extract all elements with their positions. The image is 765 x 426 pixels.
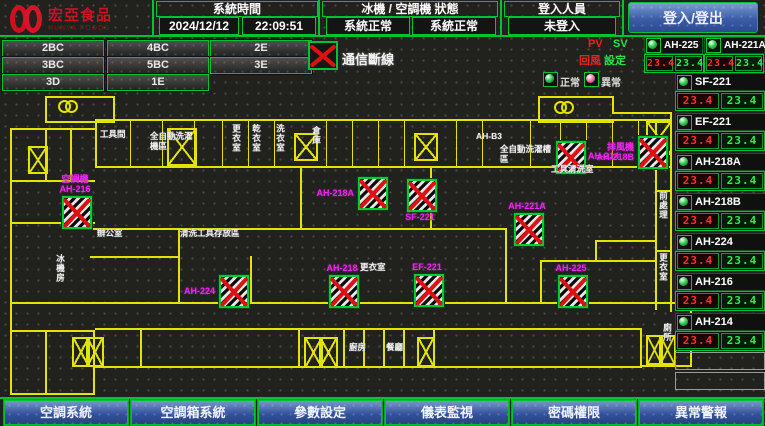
status-lamp-icon [677, 115, 692, 130]
room-label: 全自動洗濯槽區 [500, 145, 552, 164]
ahu-comm-loss-icon-ah-218a[interactable] [358, 177, 388, 210]
plan-wall [45, 330, 47, 393]
sv-value: 23.4 [721, 253, 763, 269]
nav-alarm-button[interactable]: 異常警報 [639, 400, 763, 425]
abnormal-lamp-icon [584, 72, 599, 87]
chiller-status-value: 系統正常 [326, 17, 410, 35]
room-label: 倉庫 [311, 126, 321, 145]
machine-status-label: 冰機 / 空調機 狀態 [322, 1, 498, 17]
plan-wall [612, 112, 672, 114]
unit-row-ef-221[interactable]: EF-221 [675, 113, 765, 131]
equipment-label: 排風機 AH-218B [574, 142, 634, 162]
normal-label: 正常 [560, 74, 580, 89]
ahu-comm-loss-icon-ah-224[interactable] [219, 275, 249, 308]
plan-wall [90, 256, 178, 258]
unit-row-sf-221[interactable]: SF-221 [675, 73, 765, 91]
unit-row-ah-218a[interactable]: AH-218A [675, 153, 765, 171]
top-bar: 宏亞食品 HUNYA FOODS 系統時間 2024/12/12 22:09:5… [0, 0, 765, 36]
unit-name: AH-224 [695, 236, 733, 248]
plan-wall [10, 128, 12, 395]
unit-values-ef-221: 23.423.4 [675, 131, 765, 151]
plan-wall [640, 328, 642, 368]
sv-value: 23.4 [675, 56, 702, 71]
system-time-label: 系統時間 [156, 1, 318, 17]
header-divider [318, 0, 320, 36]
status-lamp-icon [677, 75, 692, 90]
ahu-comm-loss-icon-sf-221[interactable] [407, 179, 437, 212]
sv-value: 23.4 [721, 333, 763, 349]
plan-wall [250, 256, 252, 302]
pv-value: 23.4 [677, 133, 719, 149]
abnormal-label: 異常 [601, 74, 621, 89]
status-lamp-icon [677, 155, 692, 170]
unit-values-ah-216: 23.423.4 [675, 291, 765, 311]
room-label: 工具間 [100, 130, 126, 140]
sv-value: 23.4 [721, 133, 763, 149]
system-date-value: 2024/12/12 [159, 17, 239, 35]
unit-name: AH-218A [695, 156, 741, 168]
header-divider [152, 0, 154, 36]
unit-row-ah-218b[interactable]: AH-218B [675, 193, 765, 211]
unit-row-ah-214[interactable]: AH-214 [675, 313, 765, 331]
pv-value: 23.4 [677, 333, 719, 349]
plan-wall [352, 119, 353, 166]
normal-lamp-icon [543, 72, 558, 87]
header-divider [500, 0, 502, 36]
plan-wall [113, 96, 115, 121]
plan-wall [222, 119, 223, 166]
floor-button-2e[interactable]: 2E [210, 40, 312, 57]
nav-param-settings-button[interactable]: 參數設定 [258, 400, 382, 425]
ahu-comm-loss-icon-ah-225[interactable] [558, 275, 588, 308]
status-lamp-icon [646, 38, 661, 53]
room-label: AH-B3 [476, 132, 502, 142]
floor-button-2bc[interactable]: 2BC [2, 40, 104, 57]
plan-wall [10, 393, 95, 395]
plan-wall [45, 96, 115, 98]
room-label: 更衣室 [658, 253, 668, 282]
plan-wall [595, 240, 597, 262]
plan-wall [45, 96, 47, 121]
room-label: 工具清洗室 [551, 165, 594, 175]
unit-values-ah-221a: 23.423.4 [704, 54, 764, 73]
plan-wall [538, 121, 614, 123]
floor-button-5bc[interactable]: 5BC [107, 57, 209, 74]
ahu-comm-loss-icon-ah-218b[interactable] [638, 136, 668, 169]
room-label: 廚房 [349, 343, 366, 353]
empty-unit-slot [675, 352, 765, 370]
plan-wall [130, 119, 131, 166]
unit-values-ah-218a: 23.423.4 [675, 171, 765, 191]
sv-value: 23.4 [721, 213, 763, 229]
unit-name: AH-221A [724, 40, 765, 51]
ahu-comm-loss-icon-ah-218[interactable] [329, 275, 359, 308]
unit-name: EF-221 [695, 116, 731, 128]
equipment-label: SF-221 [390, 212, 450, 222]
status-lamp-icon [677, 315, 692, 330]
plan-wall [298, 328, 300, 368]
unit-name: AH-225 [664, 40, 698, 51]
comm-loss-icon [308, 41, 338, 70]
plan-wall [538, 96, 540, 121]
plan-wall [10, 330, 95, 332]
plan-wall [540, 260, 655, 262]
plan-wall [612, 96, 614, 114]
pv-value: 23.4 [677, 253, 719, 269]
ac-status-value: 系統正常 [412, 17, 496, 35]
comm-loss-label: 通信斷線 [342, 49, 394, 68]
plan-wall [343, 328, 345, 368]
plan-wall [326, 119, 327, 166]
status-lamp-icon [677, 275, 692, 290]
unit-row-ah-216[interactable]: AH-216 [675, 273, 765, 291]
header-divider [622, 0, 624, 36]
room-label: 餐廳 [386, 343, 403, 353]
nav-password-auth-button[interactable]: 密碼權限 [512, 400, 636, 425]
room-label: 更衣室 [231, 124, 241, 153]
sv-header: SV [613, 38, 628, 50]
unit-name: SF-221 [695, 76, 731, 88]
plan-wall [403, 328, 405, 368]
equipment-label: AH-224 [155, 286, 215, 296]
plan-wall [378, 119, 379, 166]
plan-wall [505, 228, 507, 302]
room-label: 更衣室 [360, 263, 386, 273]
nav-ahu-system-button[interactable]: 空調箱系統 [131, 400, 255, 425]
room-label: 乾衣室 [251, 124, 261, 153]
pv-header: PV [588, 38, 603, 50]
unit-values-sf-221: 23.423.4 [675, 91, 765, 111]
sv-value: 23.4 [721, 173, 763, 189]
floor-button-1e[interactable]: 1E [107, 74, 209, 91]
room-label: 全自動洗濯機區 [150, 132, 196, 151]
plan-wall [10, 128, 95, 130]
unit-values-ah-214: 23.423.4 [675, 331, 765, 351]
logo-company-name: 宏亞食品 [48, 4, 112, 25]
equipment-label: AH-225 [541, 263, 601, 273]
sv-value: 23.4 [721, 93, 763, 109]
room-label: 清洗工具存放區 [180, 229, 240, 239]
plan-wall [456, 119, 457, 166]
plan-wall [482, 119, 483, 166]
hunya-logo-icon [8, 3, 42, 32]
sv-sub-label: 設定 [604, 52, 626, 68]
login-status-value: 未登入 [508, 17, 616, 35]
floor-button-4bc[interactable]: 4BC [107, 40, 209, 57]
sv-value: 23.4 [721, 293, 763, 309]
unit-name: AH-218B [695, 196, 741, 208]
spiral-stair-icon [58, 99, 78, 114]
equipment-label: EF-221 [397, 262, 457, 272]
floor-button-3d[interactable]: 3D [2, 74, 104, 91]
stairwell-icon [28, 146, 48, 174]
unit-row-ah-225[interactable]: AH-225 [644, 37, 703, 54]
stairwell-icon [86, 337, 104, 367]
pv-value: 23.4 [646, 56, 673, 71]
nav-ac-system-button[interactable]: 空調系統 [4, 400, 128, 425]
ahu-comm-loss-icon-ah-216[interactable] [62, 196, 92, 229]
plan-wall [95, 328, 640, 330]
floor-button-3e[interactable]: 3E [210, 57, 312, 74]
plan-wall [383, 328, 385, 368]
pv-value: 23.4 [677, 293, 719, 309]
plan-wall [655, 250, 672, 252]
unit-row-ah-224[interactable]: AH-224 [675, 233, 765, 251]
room-label: 冰機房 [55, 254, 65, 283]
room-label: 廁所 [662, 323, 672, 342]
system-time-value: 22:09:51 [242, 17, 316, 35]
plan-wall [45, 121, 115, 123]
ahu-comm-loss-icon-ef-221[interactable] [414, 274, 444, 307]
stairwell-icon [414, 133, 438, 161]
plan-wall [95, 366, 640, 368]
room-label: 前處理 [658, 191, 668, 220]
separator-line [0, 397, 765, 399]
status-lamp-icon [706, 38, 721, 53]
status-lamp-icon [677, 195, 692, 210]
unit-values-ah-225: 23.423.4 [644, 54, 704, 73]
status-lamp-icon [677, 235, 692, 250]
unit-values-ah-218b: 23.423.4 [675, 211, 765, 231]
pv-sub-label: 回風 [579, 52, 601, 68]
room-label: 辦公室 [97, 229, 123, 239]
room-label: 洗衣室 [275, 124, 285, 153]
unit-row-ah-221a[interactable]: AH-221A [704, 37, 765, 54]
pv-value: 23.4 [677, 93, 719, 109]
unit-name: AH-216 [695, 276, 733, 288]
ahu-comm-loss-icon-ah-221a[interactable] [514, 213, 544, 246]
unit-values-ah-224: 23.423.4 [675, 251, 765, 271]
stairwell-icon [417, 337, 435, 367]
nav-meter-monitor-button[interactable]: 儀表監視 [385, 400, 509, 425]
logo-title: 宏亞食品 HUNYA FOODS [48, 4, 112, 32]
plan-wall [390, 228, 507, 230]
pv-value: 23.4 [677, 213, 719, 229]
empty-unit-slot [675, 372, 765, 390]
login-user-label: 登入人員 [504, 1, 620, 17]
sv-value: 23.4 [735, 56, 762, 71]
plan-wall [95, 119, 97, 168]
plan-wall [404, 119, 405, 166]
stairwell-icon [319, 337, 338, 368]
logo-subtitle: HUNYA FOODS [48, 25, 112, 32]
pv-value: 23.4 [706, 56, 733, 71]
plan-wall [140, 328, 142, 368]
plan-wall [248, 119, 249, 166]
equipment-label: AH-218A [294, 188, 354, 198]
equipment-label: AH-221A [497, 201, 557, 211]
plan-wall [538, 96, 614, 98]
floor-button-3bc[interactable]: 3BC [2, 57, 104, 74]
login-logout-button[interactable]: 登入/登出 [628, 2, 758, 33]
plan-wall [595, 240, 655, 242]
pv-value: 23.4 [677, 173, 719, 189]
equipment-label: 空調機 AH-216 [45, 174, 105, 194]
unit-name: AH-214 [695, 316, 733, 328]
floor-plan: 空調機 AH-216AH-218ASF-221AH-221AAH-214排風機 … [0, 90, 765, 397]
spiral-stair-icon [554, 100, 574, 115]
